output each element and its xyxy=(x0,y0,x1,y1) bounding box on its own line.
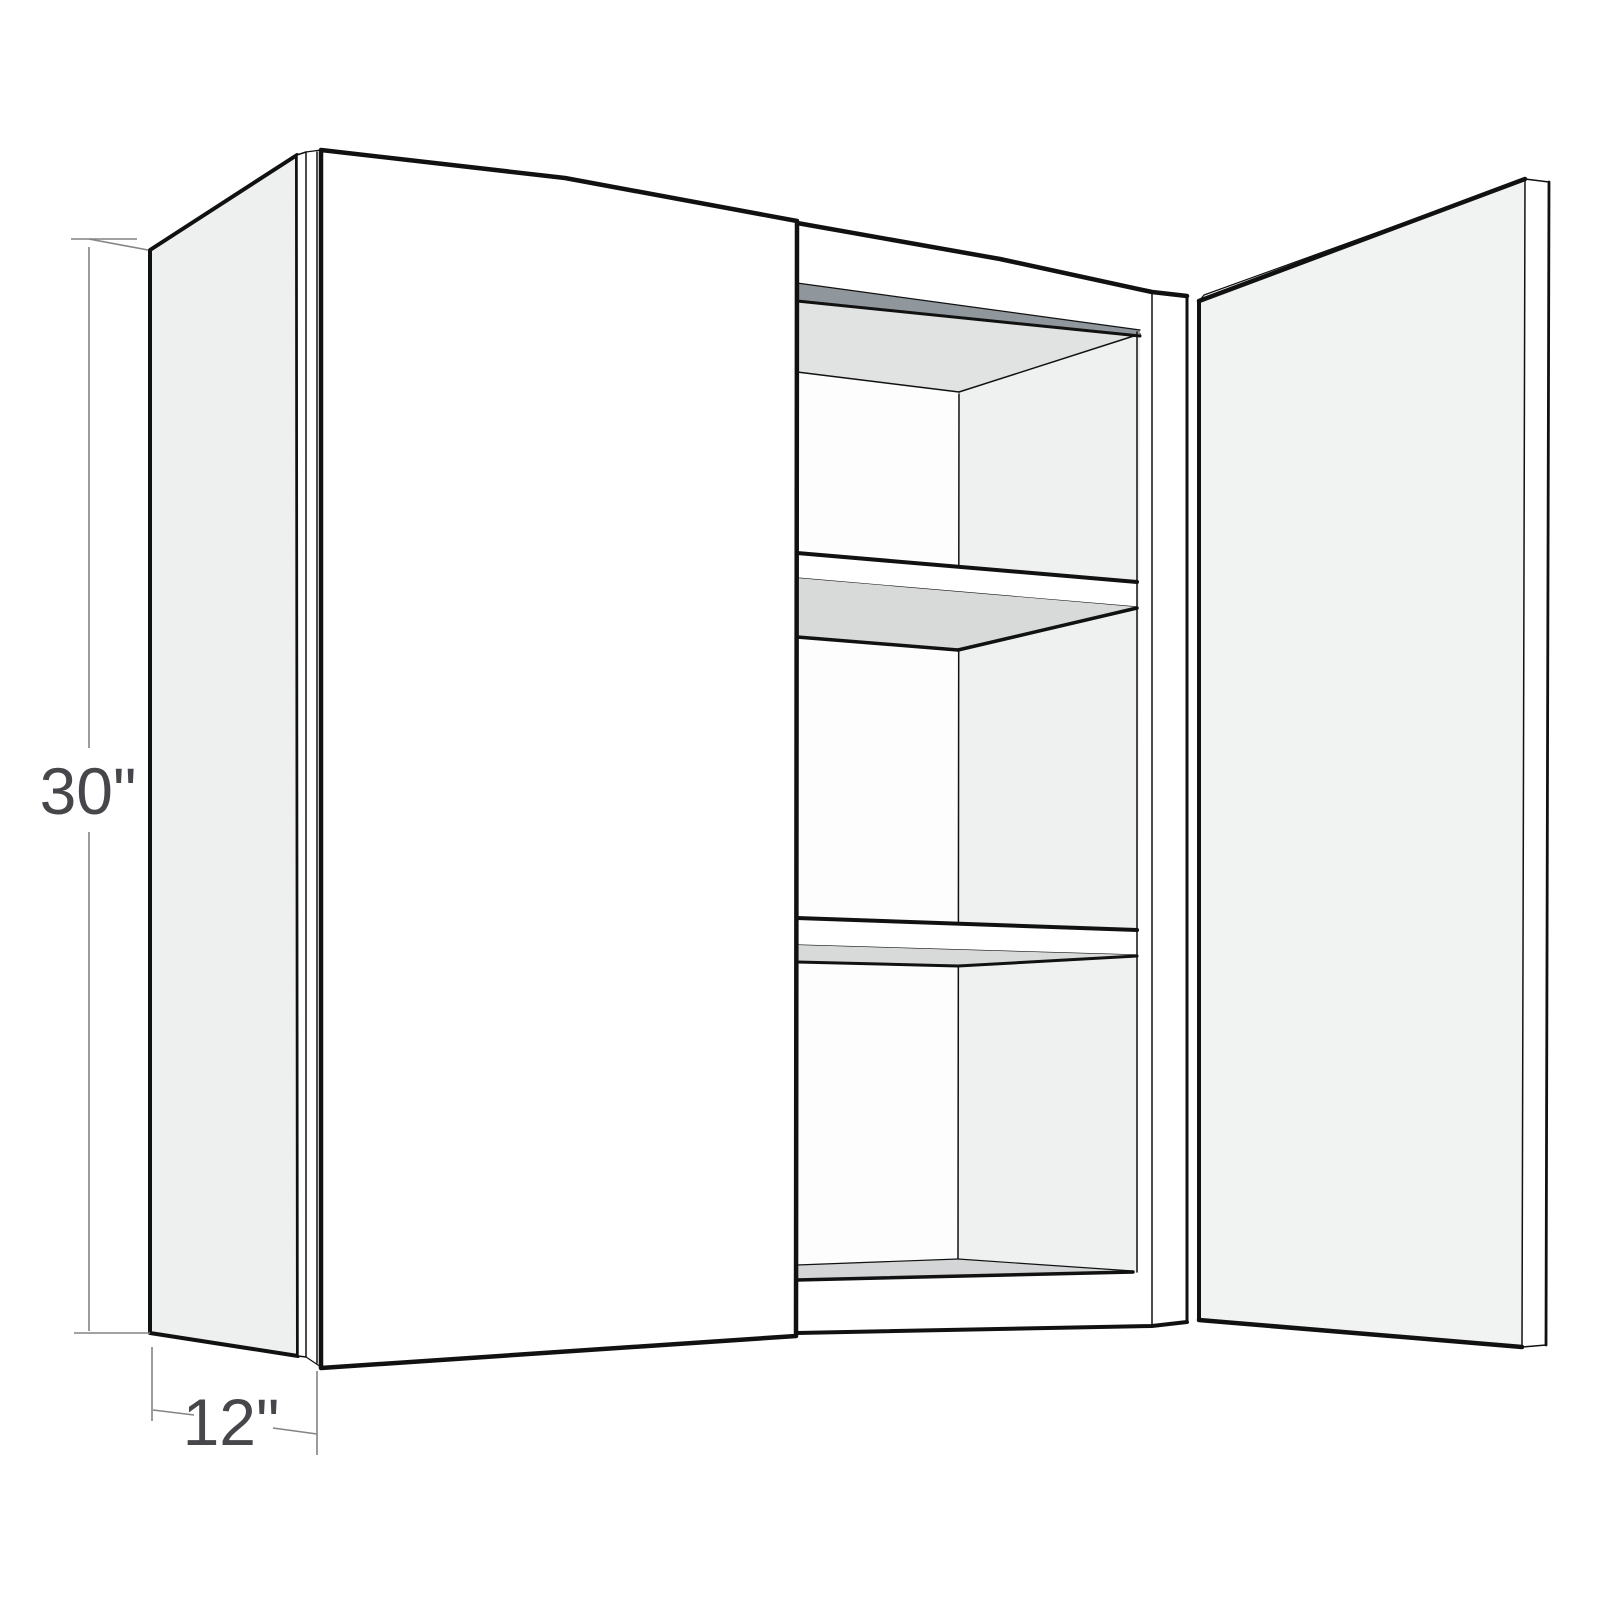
interior-back-wall xyxy=(797,372,959,1266)
open-door-group xyxy=(1199,179,1549,1347)
interior-right-wall xyxy=(958,334,1140,1272)
side-panel-group xyxy=(150,150,321,1367)
depth-dimension: 12" xyxy=(152,1347,317,1459)
interior-back-right-corner xyxy=(958,394,959,1259)
left-door xyxy=(321,150,797,1368)
depth-dimension-label: 12" xyxy=(183,1385,280,1459)
open-door-inner-face xyxy=(1199,179,1525,1347)
height-dimension: 30" xyxy=(40,239,150,1333)
depth-dim-segment-right xyxy=(273,1428,317,1434)
open-door-front-edge xyxy=(1522,179,1549,1347)
cabinet-dimension-diagram: 30" 12" xyxy=(0,0,1600,1600)
cabinet-illustration: 30" 12" xyxy=(0,0,1600,1600)
height-dim-top-extension xyxy=(89,239,148,250)
height-dimension-label: 30" xyxy=(40,754,137,828)
side-panel xyxy=(150,155,298,1356)
side-panel-front-edge xyxy=(297,152,306,1357)
cabinet-interior xyxy=(797,283,1140,1280)
